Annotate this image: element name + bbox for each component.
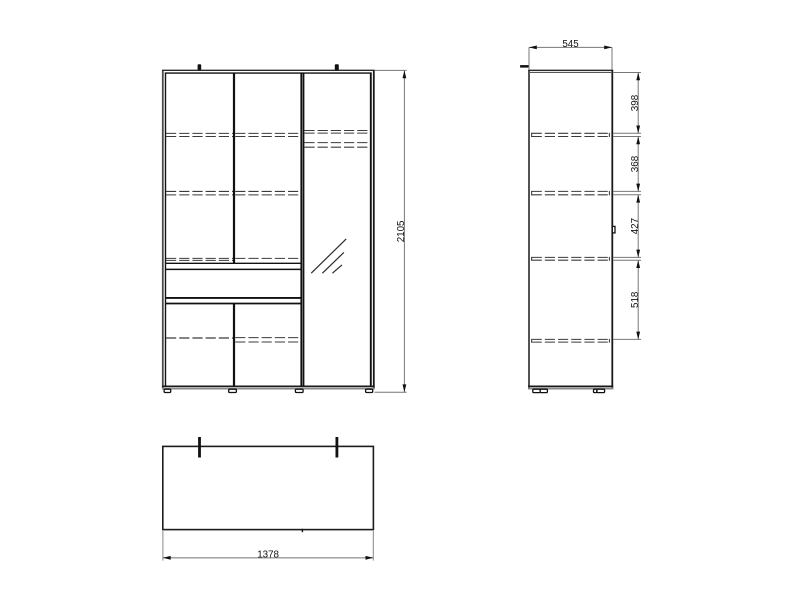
svg-text:518: 518 (630, 291, 641, 308)
svg-text:2105: 2105 (396, 220, 407, 242)
svg-text:427: 427 (630, 218, 641, 234)
svg-text:368: 368 (630, 155, 641, 172)
svg-text:1378: 1378 (257, 549, 279, 560)
svg-text:545: 545 (562, 39, 579, 50)
svg-text:398: 398 (630, 94, 641, 111)
